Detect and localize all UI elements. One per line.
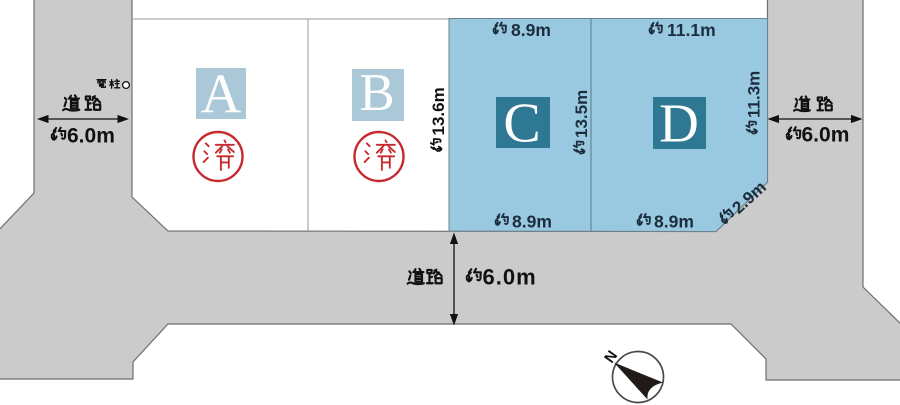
svg-text:6.0m: 6.0m — [67, 124, 115, 147]
svg-text:N: N — [601, 348, 621, 367]
svg-text:8.9m: 8.9m — [512, 211, 552, 231]
svg-text:B: B — [359, 64, 394, 122]
svg-text:D: D — [659, 93, 699, 154]
svg-text:11.3m: 11.3m — [745, 71, 764, 118]
svg-text:13.6m: 13.6m — [429, 87, 448, 135]
svg-text:A: A — [201, 64, 242, 126]
svg-text:6.0m: 6.0m — [802, 124, 850, 147]
svg-text:C: C — [503, 93, 540, 155]
svg-text:13.5m: 13.5m — [572, 90, 591, 138]
svg-text:8.9m: 8.9m — [654, 211, 694, 231]
svg-text:8.9m: 8.9m — [511, 20, 551, 40]
svg-text:11.1m: 11.1m — [667, 20, 716, 40]
svg-text:6.0m: 6.0m — [483, 265, 537, 290]
